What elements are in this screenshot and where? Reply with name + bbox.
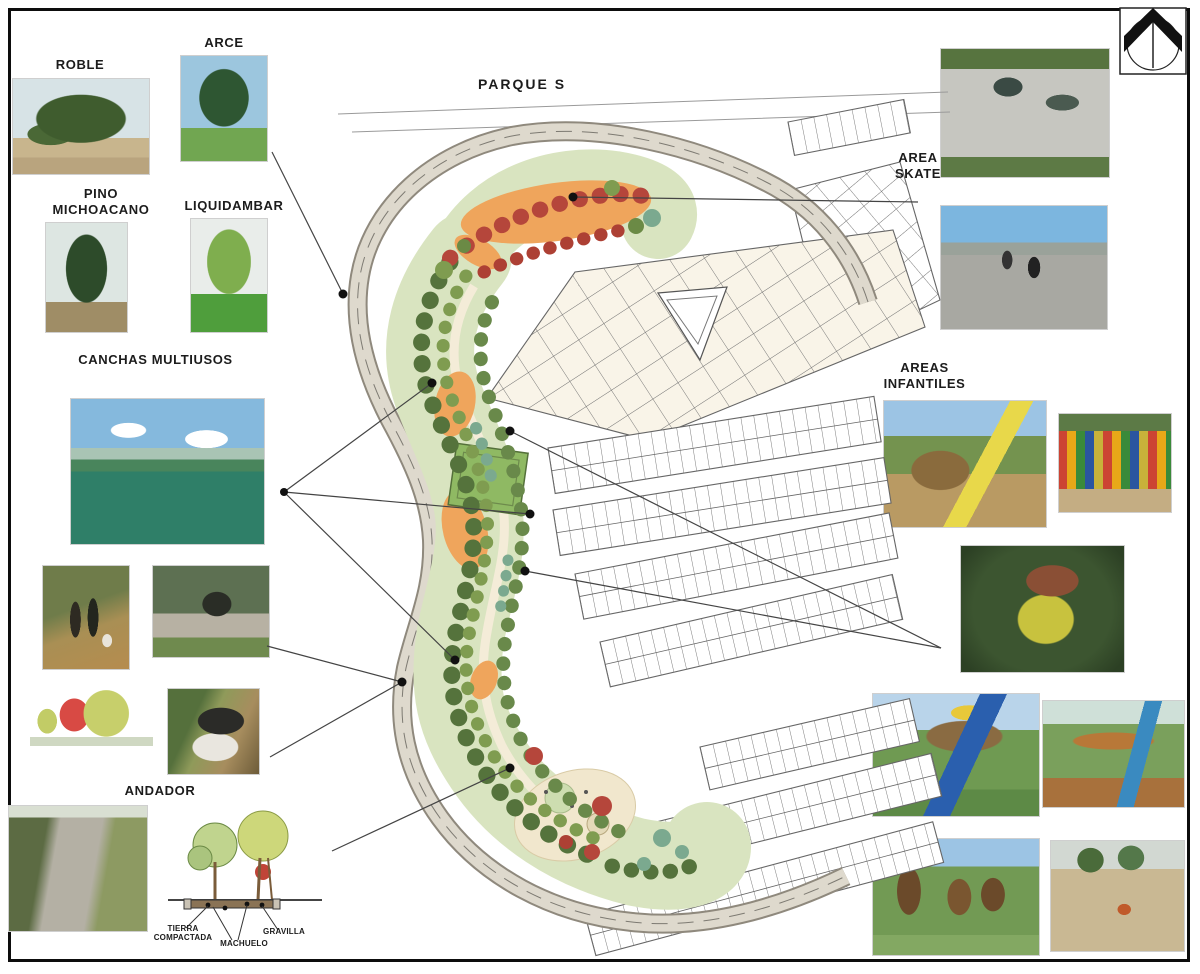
playground-blue-slide-photo (872, 693, 1040, 817)
skatepark-action-photo (940, 205, 1108, 330)
andador-path-photo (8, 805, 148, 932)
presentation-board: PARQUE S ROBLE ARCE PINO MICHOACANO LIQU… (0, 0, 1200, 974)
label-areas-infantiles: AREAS INFANTILES (872, 360, 977, 392)
woman-cycling-photo (152, 565, 270, 658)
stroller-photo (167, 688, 260, 775)
skatepark-overview-photo (940, 48, 1110, 178)
playground-swings-photo (1042, 700, 1185, 808)
liquidambar-photo (190, 218, 268, 333)
picnic-tables-sketch (30, 690, 153, 768)
playground-palisade-photo (1058, 413, 1172, 513)
label-andador: ANDADOR (95, 783, 225, 799)
canchas-multiusos-photo (70, 398, 265, 545)
label-canchas-multiusos: CANCHAS MULTIUSOS (78, 352, 233, 368)
page-title: PARQUE S (452, 76, 592, 93)
label-arce: ARCE (176, 35, 272, 51)
label-liquidambar: LIQUIDAMBAR (182, 198, 286, 214)
label-tierra-compactada: TIERRA COMPACTADA (146, 924, 220, 942)
roble-photo (12, 78, 150, 175)
label-area-skate: AREA SKATE (878, 150, 958, 182)
people-walking-dogs-photo (42, 565, 130, 670)
label-gravilla: GRAVILLA (256, 927, 312, 936)
playground-plaza-photo (1050, 840, 1185, 952)
playground-forest-photo (960, 545, 1125, 673)
playground-towers-photo (872, 838, 1040, 956)
arce-photo (180, 55, 268, 162)
playground-castle-photo (883, 400, 1047, 528)
label-roble: ROBLE (10, 57, 150, 73)
pino-michoacano-photo (45, 222, 128, 333)
label-machuelo: MACHUELO (212, 939, 276, 948)
label-pino-michoacano: PINO MICHOACANO (36, 186, 166, 218)
